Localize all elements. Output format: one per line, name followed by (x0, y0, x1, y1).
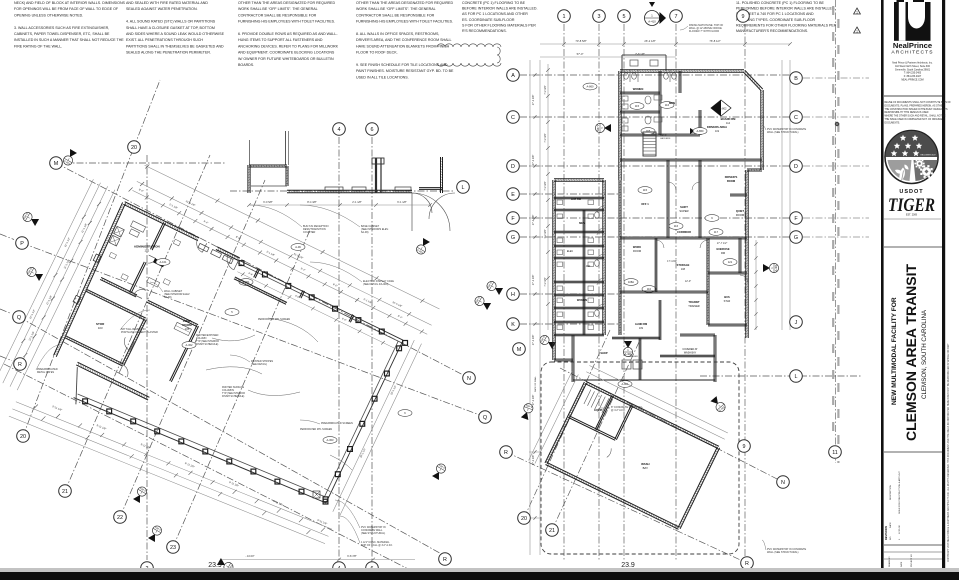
svg-text:WASH BAY: WASH BAY (684, 352, 697, 355)
svg-text:B: B (794, 76, 798, 82)
svg-text:70′-8 5/8″: 70′-8 5/8″ (575, 39, 586, 43)
svg-text:23.9: 23.9 (621, 562, 635, 569)
svg-text:PERFORATED MTL SCREEN: PERFORATED MTL SCREEN (300, 428, 332, 431)
svg-text:21: 21 (62, 489, 68, 495)
svg-text:A-401: A-401 (625, 352, 632, 356)
svg-text:NEW MULTIMODAL FACILITY FOR: NEW MULTIMODAL FACILITY FOR (891, 297, 898, 405)
svg-text:A-860: A-860 (587, 85, 594, 89)
svg-text:A-860: A-860 (697, 129, 704, 133)
svg-text:11B: 11B (646, 129, 651, 133)
svg-text:C: C (794, 115, 798, 121)
svg-text:4: 4 (338, 127, 341, 133)
svg-text:17′-1 1/8″: 17′-1 1/8″ (532, 215, 535, 226)
svg-text:WHERE THE OTHER SUCH AND RETAI: WHERE THE OTHER SUCH AND RETAIL, SHALL N… (885, 115, 947, 118)
svg-text:SHOP: SHOP (600, 351, 608, 355)
svg-text:J: J (795, 320, 798, 326)
svg-text:L: L (795, 374, 798, 380)
svg-text:3: 3 (598, 14, 601, 20)
svg-text:MEN: MEN (669, 101, 675, 105)
svg-text:A-101: A-101 (160, 260, 167, 264)
svg-text:PROJECT NO: PROJECT NO (911, 554, 913, 567)
svg-text:12′-0″: 12′-0″ (685, 280, 691, 283)
svg-text:20: 20 (20, 434, 26, 440)
svg-text:(SEE DETAIL 4/A-900): (SEE DETAIL 4/A-900) (363, 283, 388, 286)
svg-text:9: 9 (742, 14, 745, 20)
svg-text:G: G (794, 235, 798, 241)
svg-text:THE ISSUE USED IN COMPLETED NO: THE ISSUE USED IN COMPLETED NOT. OF ORIG… (885, 118, 944, 121)
svg-text:20: 20 (131, 145, 137, 151)
svg-text:6: 6 (371, 127, 374, 133)
svg-text:102: 102 (144, 249, 149, 253)
svg-text:QUIET: QUIET (736, 209, 745, 213)
svg-text:ISSUE FOR CONSTRUCTION & APC U: ISSUE FOR CONSTRUCTION & APC UNIT (898, 471, 901, 514)
svg-text:CLEMSON, SOUTH CAROLINA: CLEMSON, SOUTH CAROLINA (921, 309, 928, 399)
svg-text:M: M (517, 347, 522, 353)
svg-text:A: A (511, 73, 515, 79)
svg-text:17′-1 1/8″: 17′-1 1/8″ (532, 335, 535, 346)
svg-text:26′-2 1/8″: 26′-2 1/8″ (644, 39, 655, 43)
svg-text:R: R (745, 561, 749, 567)
svg-text:TRAINER: TRAINER (688, 304, 700, 308)
svg-text:22: 22 (117, 515, 123, 521)
svg-text:L: L (462, 185, 465, 191)
svg-text:JAN: JAN (586, 265, 591, 268)
svg-text:EQUIP: EQUIP (594, 408, 602, 412)
svg-text:ROOM: ROOM (633, 249, 641, 253)
svg-text:6A-09): 6A-09) (361, 231, 369, 234)
svg-text:ALMN RM: ALMN RM (635, 322, 647, 326)
svg-text:7′-2 3/4″: 7′-2 3/4″ (544, 229, 547, 238)
svg-text:TOP OF WALL @ 3.2″ A.F.F.: TOP OF WALL @ 3.2″ A.F.F. (361, 544, 393, 547)
svg-text:RESPONSIBILITY THIS DESIGN IS: RESPONSIBILITY THIS DESIGN IS USED (885, 112, 929, 114)
svg-text:PERFORATED MTL SCREEN: PERFORATED MTL SCREEN (258, 318, 290, 321)
svg-text:6′-0 5/8″: 6′-0 5/8″ (263, 200, 273, 204)
svg-text:K: K (511, 322, 515, 328)
svg-text:PORTLAND CEMENT PLASTER: PORTLAND CEMENT PLASTER (121, 331, 158, 334)
svg-text:A-401: A-401 (596, 125, 600, 132)
svg-text:A-302: A-302 (186, 343, 193, 347)
svg-text:108A: 108A (628, 280, 634, 284)
svg-text:DRAWN BY: DRAWN BY (888, 556, 891, 567)
svg-text:116: 116 (674, 224, 679, 228)
svg-text:EXERCISE: EXERCISE (716, 247, 729, 251)
svg-text:WORK: WORK (633, 245, 641, 249)
svg-text:M: M (54, 161, 59, 167)
svg-text:ARCHITECTS: ARCHITECTS (891, 50, 933, 56)
svg-text:SHIFT: SHIFT (680, 205, 688, 209)
svg-text:121: 121 (728, 260, 733, 264)
svg-text:CLEMSON AREA TRANSIT: CLEMSON AREA TRANSIT (903, 263, 919, 441)
svg-text:1: 1 (856, 10, 858, 14)
svg-text:FLOOR/2 7″ WITH FLOOR: FLOOR/2 7″ WITH FLOOR (689, 30, 719, 33)
svg-text:EST. 2009: EST. 2009 (906, 214, 918, 217)
svg-text:FINISH SCHEDULE): FINISH SCHEDULE) (222, 395, 245, 398)
svg-text:D: D (511, 164, 515, 170)
svg-text:115: 115 (643, 188, 648, 192)
svg-text:109: 109 (639, 327, 644, 330)
svg-text:A-09: A-09 (295, 245, 301, 249)
svg-text:17′-1 1/8″: 17′-1 1/8″ (532, 95, 535, 106)
svg-text:115: 115 (635, 104, 640, 108)
svg-text:RM: RM (721, 251, 725, 255)
svg-text:7′-2 3/4″: 7′-2 3/4″ (544, 85, 547, 94)
svg-text:A-401: A-401 (774, 264, 778, 271)
svg-text:1: 1 (563, 14, 566, 20)
svg-text:D: D (794, 164, 798, 170)
svg-text:LKR RM: LKR RM (571, 197, 581, 201)
svg-text:BAY: BAY (643, 466, 649, 470)
svg-text:SUPER: SUPER (679, 209, 688, 213)
svg-text:105: 105 (185, 327, 190, 331)
svg-text:FINISH SCHEDULE): FINISH SCHEDULE) (196, 343, 219, 346)
svg-text:ELEC: ELEC (567, 250, 574, 253)
svg-text:(SEE DETAIL): (SEE DETAIL) (251, 363, 267, 366)
svg-text:Q: Q (483, 415, 487, 421)
svg-text:THE CONSTRUCTION ISSUED IN THE: THE CONSTRUCTION ISSUED IN THE BUILT. DE… (885, 109, 948, 111)
svg-text:H: H (511, 292, 515, 298)
svg-text:METAL GATES: METAL GATES (37, 371, 54, 374)
svg-text:N: N (467, 376, 471, 382)
svg-text:OFF 1: OFF 1 (641, 202, 649, 206)
svg-text:7′-2 3/4″: 7′-2 3/4″ (544, 133, 547, 142)
svg-text:NO.: NO. (890, 536, 892, 540)
svg-text:(SEE STRUCTURAL): (SEE STRUCTURAL) (361, 532, 385, 535)
svg-text:WALL (SEE STRUCTURAL): WALL (SEE STRUCTURAL) (767, 551, 799, 554)
svg-text:2′-1 1/8″: 2′-1 1/8″ (352, 200, 362, 204)
svg-text:Q: Q (17, 315, 21, 321)
svg-text:LADDERS: LADDERS (660, 137, 671, 140)
svg-text:8′-4 3/8″: 8′-4 3/8″ (307, 200, 317, 204)
svg-text:119: 119 (715, 130, 720, 133)
svg-text:RECOVERY.GOV: RECOVERY.GOV (920, 155, 936, 157)
svg-text:17′-1 1/8″: 17′-1 1/8″ (532, 395, 535, 406)
svg-text:@ 3.2″ A.F.F.: @ 3.2″ A.F.F. (611, 409, 626, 412)
svg-text:76′-8 1/2″: 76′-8 1/2″ (709, 39, 720, 43)
svg-text:DOCUMENTS, PLANS, PREPARED HER: DOCUMENTS, PLANS, PREPARED HEREIN, AS OT… (885, 104, 945, 107)
svg-text:N: N (781, 480, 785, 486)
svg-text:110: 110 (647, 287, 652, 291)
svg-text:WALL (SEE STRUCTURAL): WALL (SEE STRUCTURAL) (767, 131, 799, 134)
svg-text:17′-4.83″: 17′-4.83″ (667, 260, 677, 263)
svg-text:A-410: A-410 (648, 20, 656, 24)
svg-text:COPYRIGHT 2008 NEAL PRINCE & P: COPYRIGHT 2008 NEAL PRINCE & PARTNERS AR… (947, 343, 950, 562)
svg-text:BUS: BUS (724, 295, 730, 299)
svg-text:WOMEN: WOMEN (633, 87, 644, 91)
svg-text:17′-7 1/2″: 17′-7 1/2″ (717, 242, 728, 245)
svg-text:REVISIONS: REVISIONS (884, 526, 888, 540)
svg-text:STLR: STLR (724, 299, 731, 303)
svg-text:6′-1 1/8″: 6′-1 1/8″ (397, 200, 407, 204)
svg-text:12.05.08: 12.05.08 (899, 525, 901, 534)
svg-text:G: G (511, 235, 515, 241)
svg-text:21: 21 (549, 528, 555, 534)
svg-text:WOMEN: WOMEN (577, 298, 587, 302)
svg-text:DRIVERS AREA: DRIVERS AREA (707, 125, 727, 129)
svg-text:23.9: 23.9 (208, 562, 222, 569)
svg-text:NealPrince: NealPrince (893, 41, 932, 50)
svg-text:DATE: DATE (900, 561, 903, 567)
svg-text:A-303: A-303 (327, 438, 334, 442)
svg-text:103: 103 (98, 326, 103, 330)
svg-text:1: 1 (856, 29, 858, 33)
svg-text:17′-1 1/8″: 17′-1 1/8″ (532, 455, 535, 466)
svg-text:BOARD RM: BOARD RM (721, 117, 737, 121)
svg-text:MEN: MEN (579, 221, 585, 225)
svg-text:DOCUMENTS.: DOCUMENTS. (885, 122, 901, 124)
svg-text:REUSE OF DOCUMENTS SHALL NOT C: REUSE OF DOCUMENTS SHALL NOT CONSTITUTE … (885, 101, 952, 104)
svg-text:- 10.00°: - 10.00° (245, 554, 254, 558)
svg-text:COUNTER: COUNTER (303, 231, 316, 234)
svg-text:5: 5 (623, 14, 626, 20)
svg-text:7′-2 3/4″: 7′-2 3/4″ (544, 277, 547, 286)
svg-text:A-802: A-802 (720, 107, 727, 111)
svg-text:METAL: METAL (660, 134, 668, 137)
svg-text:114: 114 (726, 122, 731, 125)
svg-text:R: R (443, 557, 447, 563)
svg-text:R: R (504, 450, 508, 456)
svg-text:STORAGE: STORAGE (677, 263, 690, 267)
svg-text:57′-0″: 57′-0″ (577, 52, 584, 56)
svg-text:NEAL-PRINCE.COM: NEAL-PRINCE.COM (901, 79, 923, 82)
svg-text:DESCRIPTION: DESCRIPTION (890, 485, 892, 500)
svg-text:7′-2 3/4″: 7′-2 3/4″ (544, 181, 547, 190)
svg-text:17′-1 1/8″: 17′-1 1/8″ (532, 275, 535, 286)
svg-text:11: 11 (832, 450, 838, 456)
svg-text:TRANSIT: TRANSIT (688, 300, 700, 304)
svg-text:20: 20 (521, 516, 527, 522)
svg-text:7: 7 (675, 14, 678, 20)
svg-text:117: 117 (714, 230, 719, 234)
svg-text:9: 9 (743, 444, 746, 450)
svg-text:23: 23 (170, 545, 176, 551)
svg-text:CORRIDOR: CORRIDOR (677, 230, 691, 234)
svg-text:DRIVER'S: DRIVER'S (725, 175, 738, 179)
svg-text:6A-09): 6A-09) (164, 296, 172, 299)
svg-text:E: E (511, 192, 515, 198)
svg-text:P: P (20, 241, 24, 247)
svg-text:108: 108 (681, 268, 686, 271)
svg-text:17′-1 1/8″: 17′-1 1/8″ (532, 155, 535, 166)
svg-text:DATE: DATE (889, 522, 892, 528)
svg-text:6′-8 7/8″: 6′-8 7/8″ (347, 554, 357, 558)
svg-text:FACE OF WALL: FACE OF WALL (534, 375, 537, 392)
svg-text:C: C (511, 115, 515, 121)
svg-text:PREFABRICATED SCREEN: PREFABRICATED SCREEN (321, 422, 353, 425)
svg-text:ROOM: ROOM (727, 179, 736, 183)
svg-text:R: R (18, 362, 22, 368)
svg-text:ROOM: ROOM (736, 213, 745, 217)
